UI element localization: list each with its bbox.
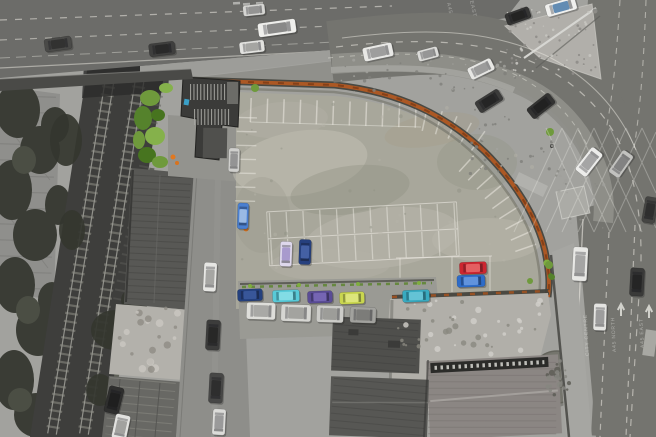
speckle: [507, 158, 509, 160]
speckle: [461, 340, 466, 345]
speckle: [363, 79, 366, 82]
speckle: [174, 310, 181, 317]
speckle: [581, 181, 583, 183]
speckle: [397, 327, 399, 329]
speckle: [572, 72, 575, 75]
speckle: [520, 47, 523, 50]
speckle: [507, 107, 509, 109]
traffic-cone: [175, 161, 179, 165]
speckle: [174, 325, 177, 328]
speckle: [535, 58, 537, 60]
car-white: [242, 3, 266, 18]
tree-speckle: [549, 389, 552, 392]
speckle: [352, 59, 355, 62]
speckle: [495, 150, 497, 152]
speckle: [498, 135, 500, 137]
speckle: [504, 116, 506, 118]
speckle: [557, 189, 560, 192]
speckle: [558, 68, 560, 70]
speckle: [556, 54, 558, 56]
speckle: [579, 219, 581, 221]
speckle: [565, 183, 567, 185]
speckle: [587, 11, 589, 13]
speckle: [547, 58, 548, 59]
speckle: [345, 66, 346, 67]
speckle: [545, 34, 548, 37]
speckle: [531, 9, 533, 11]
speckle: [120, 341, 126, 347]
speckle: [564, 179, 567, 182]
speckle: [474, 109, 476, 111]
speckle: [484, 158, 487, 161]
speckle: [538, 41, 541, 44]
speckle: [516, 139, 518, 141]
speckle: [543, 151, 545, 153]
speckle: [557, 170, 560, 173]
speckle: [124, 329, 130, 335]
speckle: [423, 308, 427, 312]
speckle: [537, 12, 539, 14]
speckle: [539, 57, 541, 59]
car-navy: [299, 239, 313, 266]
speckle: [471, 318, 477, 324]
speckle: [156, 319, 164, 327]
speckle: [542, 121, 544, 123]
speckle: [559, 175, 562, 178]
speckle: [322, 123, 326, 127]
speckle: [552, 139, 556, 143]
speckle: [496, 64, 499, 67]
speckle: [370, 226, 373, 229]
tree-speckle: [566, 388, 568, 390]
speckle: [583, 63, 585, 65]
car-teal: [402, 289, 431, 303]
speckle: [475, 335, 481, 341]
speckle: [503, 65, 506, 68]
speckle: [517, 126, 521, 130]
speckle: [137, 319, 144, 326]
speckle: [446, 83, 449, 86]
speckle: [538, 55, 540, 57]
speckle: [519, 75, 520, 76]
speckle: [511, 57, 514, 60]
tree-speckle: [562, 386, 566, 390]
speckle: [503, 259, 506, 262]
speckle: [594, 183, 596, 185]
speckle: [429, 77, 432, 80]
speckle: [578, 54, 580, 56]
traffic-cone: [171, 155, 176, 160]
speckle: [529, 26, 532, 29]
car-cyan: [272, 289, 301, 303]
speckle: [452, 63, 454, 65]
speckle: [380, 115, 383, 118]
speckle: [448, 221, 451, 224]
speckle: [164, 307, 168, 311]
speckle: [452, 323, 458, 329]
speckle: [497, 320, 500, 323]
speckle: [273, 233, 277, 237]
speckle: [503, 72, 506, 75]
speckle: [378, 159, 380, 161]
speckle: [434, 346, 440, 352]
speckle: [579, 27, 582, 30]
speckle: [535, 36, 538, 39]
speckle: [404, 83, 407, 86]
speckle: [494, 216, 496, 218]
speckle: [534, 328, 537, 331]
speckle: [353, 75, 355, 77]
speckle: [550, 54, 553, 57]
speckle: [484, 123, 487, 126]
speckle: [254, 193, 256, 195]
speckle: [538, 11, 540, 13]
speckle: [538, 312, 542, 316]
speckle: [575, 34, 576, 35]
speckle: [470, 60, 472, 62]
speckle: [415, 70, 418, 73]
speckle: [446, 328, 452, 334]
car-navy: [237, 289, 264, 303]
speckle: [515, 62, 518, 65]
speckle: [514, 25, 516, 27]
speckle: [403, 322, 409, 328]
tree-speckle: [549, 370, 555, 376]
speckle: [148, 366, 155, 373]
signed-warehouse: [426, 354, 562, 437]
speckle: [517, 144, 520, 147]
speckle: [505, 98, 507, 100]
speckle: [488, 351, 493, 356]
speckle: [551, 144, 554, 147]
speckle: [460, 300, 464, 304]
speckle: [246, 134, 248, 136]
speckle: [270, 179, 273, 182]
speckle: [514, 154, 518, 158]
speckle: [532, 155, 534, 157]
speckle: [568, 34, 570, 36]
speckle: [576, 61, 579, 64]
speckle: [427, 64, 429, 66]
speckle: [145, 315, 152, 322]
car-purple: [307, 291, 334, 305]
speckle: [602, 227, 603, 228]
speckle: [372, 80, 374, 82]
speckle: [400, 339, 404, 343]
speckle: [518, 347, 523, 352]
speckle: [372, 89, 375, 92]
speckle: [533, 22, 535, 24]
speckle: [406, 307, 410, 311]
speckle: [484, 167, 487, 170]
speckle: [480, 168, 481, 169]
speckle: [590, 69, 592, 71]
speckle: [354, 91, 356, 93]
car-white-violet: [280, 241, 294, 268]
tree-speckle: [553, 393, 556, 396]
car-white: [212, 409, 228, 437]
speckle: [569, 217, 572, 220]
speckle: [164, 341, 171, 348]
speckle: [387, 108, 390, 111]
speckle: [418, 338, 421, 341]
speckle: [284, 232, 288, 236]
speckle: [400, 77, 402, 79]
speckle: [405, 344, 407, 346]
speckle: [514, 76, 516, 78]
speckle: [435, 299, 438, 302]
speckle: [520, 327, 523, 330]
speckle: [489, 243, 491, 245]
speckle: [332, 103, 335, 106]
speckle: [452, 89, 454, 91]
speckle: [464, 88, 466, 90]
speckle: [454, 344, 456, 346]
pedestrian-refuge: [556, 186, 590, 219]
speckle: [341, 80, 343, 82]
speckle: [449, 316, 451, 318]
speckle: [513, 69, 515, 71]
speckle: [536, 302, 541, 307]
speckle: [497, 170, 499, 172]
speckle: [472, 87, 474, 89]
speckle: [258, 144, 261, 147]
speckle: [525, 23, 527, 25]
speckle: [400, 62, 402, 64]
speckle: [555, 174, 557, 176]
speckle: [499, 61, 501, 63]
speckle: [508, 118, 510, 120]
speckle: [149, 347, 156, 354]
speckle: [491, 346, 493, 348]
speckle: [602, 183, 605, 186]
speckle: [475, 145, 479, 149]
speckle: [402, 343, 405, 346]
speckle: [445, 106, 449, 110]
speckle: [136, 311, 139, 314]
speckle: [552, 29, 555, 32]
speckle: [577, 173, 578, 174]
speckle: [118, 336, 122, 340]
speckle: [264, 232, 266, 234]
speckle: [558, 39, 560, 41]
speckle: [596, 185, 598, 187]
speckle: [511, 69, 513, 71]
speckle: [559, 168, 563, 172]
speckle: [547, 36, 549, 38]
van-white: [246, 302, 277, 322]
speckle: [378, 231, 382, 235]
speckle: [399, 114, 403, 118]
speckle: [564, 64, 566, 66]
speckle: [481, 137, 484, 140]
speckle: [485, 343, 489, 347]
speckle: [280, 147, 282, 149]
car-dark: [629, 268, 646, 298]
speckle: [509, 30, 512, 33]
speckle: [594, 66, 596, 68]
speckle: [352, 239, 355, 242]
tree-speckle: [564, 369, 566, 371]
tree-speckle: [555, 370, 559, 374]
speckle: [483, 333, 487, 337]
speckle: [245, 147, 248, 150]
speckle: [470, 157, 473, 160]
speckle: [475, 307, 481, 313]
speckle: [518, 319, 522, 323]
speckle: [540, 147, 543, 150]
speckle: [523, 69, 526, 72]
car-blue: [237, 203, 250, 231]
car-white: [203, 262, 219, 293]
speckle: [441, 126, 443, 128]
speckle: [588, 54, 591, 57]
speckle: [130, 352, 133, 355]
aerial-photo: CITY CENTRE A45 NORTH A45 EAST A45 EAST: [0, 0, 656, 437]
speckle: [365, 70, 368, 73]
car-red: [459, 261, 488, 275]
speckle: [428, 332, 433, 337]
speckle: [530, 165, 534, 169]
speckle: [583, 58, 585, 60]
speckle: [496, 148, 498, 150]
speckle: [381, 77, 385, 81]
blue-bin: [184, 99, 190, 106]
speckle: [438, 74, 441, 77]
car-dark: [208, 373, 225, 405]
speckle: [470, 141, 473, 144]
speckle: [520, 160, 523, 163]
speckle: [570, 222, 572, 224]
speckle: [451, 318, 454, 321]
speckle: [585, 29, 586, 30]
speckle: [173, 336, 177, 340]
speckle: [526, 28, 529, 31]
speckle: [494, 123, 496, 125]
speckle: [518, 77, 520, 79]
speckle: [511, 97, 514, 100]
speckle: [470, 342, 476, 348]
speckle: [348, 189, 351, 192]
speckle: [548, 167, 551, 170]
tree-speckle: [564, 375, 567, 378]
tree-speckle: [558, 359, 561, 362]
speckle: [417, 344, 421, 348]
tree-speckle: [556, 363, 559, 366]
speckle: [251, 129, 253, 131]
speckle: [523, 44, 526, 47]
car-silver: [228, 148, 241, 174]
speckle: [529, 155, 532, 158]
speckle: [386, 64, 388, 66]
speckle: [507, 324, 510, 327]
speckle: [515, 69, 517, 71]
speckle: [453, 86, 455, 88]
speckle: [469, 172, 472, 175]
speckle: [386, 69, 388, 71]
speckle: [532, 70, 534, 72]
speckle: [492, 123, 494, 125]
speckle: [445, 73, 447, 75]
speckle: [139, 365, 146, 372]
speckle: [566, 59, 568, 61]
speckle: [388, 76, 391, 79]
car-yellow: [339, 292, 366, 306]
speckle: [593, 44, 595, 46]
speckle: [506, 49, 508, 51]
speckle: [457, 188, 461, 192]
tree-speckle: [549, 385, 552, 388]
speckle: [425, 338, 429, 342]
speckle: [593, 194, 596, 197]
speckle: [500, 165, 502, 167]
speckle: [398, 214, 401, 217]
van-white: [572, 247, 590, 283]
tree-speckle: [546, 375, 550, 379]
speckle: [396, 220, 399, 223]
van-white: [316, 305, 345, 324]
truck-gray: [350, 307, 378, 325]
speckle: [368, 76, 371, 79]
speckle: [563, 169, 565, 171]
car-dark: [205, 320, 222, 352]
car-white: [593, 303, 608, 332]
speckle: [431, 319, 435, 323]
speckle: [502, 332, 506, 336]
speckle: [585, 23, 588, 26]
speckle: [517, 329, 521, 333]
speckle: [491, 118, 493, 120]
tree-speckle: [557, 382, 563, 388]
speckle: [157, 335, 161, 339]
speckle: [576, 24, 579, 27]
speckle: [558, 17, 560, 19]
aerial-scene-svg: CITY CENTRE A45 NORTH A45 EAST A45 EAST: [0, 0, 656, 437]
speckle: [404, 213, 406, 215]
speckle: [275, 266, 278, 269]
speckle: [479, 128, 480, 129]
speckle: [515, 59, 517, 61]
speckle: [373, 189, 375, 191]
speckle: [513, 54, 514, 55]
speckle: [147, 358, 155, 366]
speckle: [566, 192, 567, 193]
speckle: [541, 303, 543, 305]
speckle: [439, 83, 442, 86]
van-white: [281, 304, 313, 324]
speckle: [543, 25, 544, 26]
speckle: [563, 182, 565, 184]
tree-speckle: [567, 381, 571, 385]
car-blue: [457, 274, 487, 289]
tree-speckle: [554, 374, 560, 380]
speckle: [511, 62, 513, 64]
speckle: [241, 258, 243, 260]
speckle: [594, 11, 597, 14]
speckle: [507, 12, 508, 13]
speckle: [465, 64, 466, 65]
